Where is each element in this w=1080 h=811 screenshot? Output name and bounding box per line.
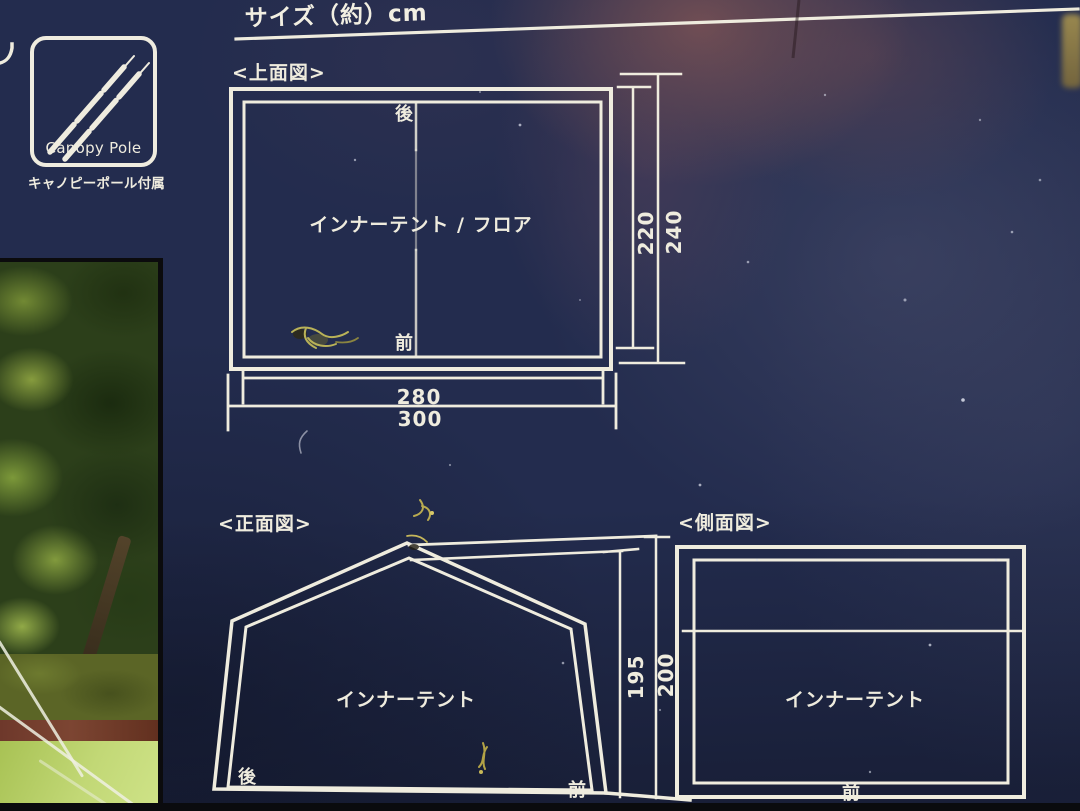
photo-hedge [0,654,158,720]
campsite-photo [0,258,163,811]
photo-lawn [0,741,158,811]
package-edge-reflection [1062,14,1080,88]
package-bottom-edge [0,803,1080,811]
canopy-pole-label: Canopy Pole [34,139,153,157]
photo-foliage [0,262,158,654]
package-size-panel: Canopy Pole キャノピーポール付属 サイズ（約）cm <上面図> 後 … [0,0,1080,811]
canopy-pole-caption: キャノピーポール付属 [28,172,168,192]
canopy-pole-badge: Canopy Pole [30,36,157,167]
